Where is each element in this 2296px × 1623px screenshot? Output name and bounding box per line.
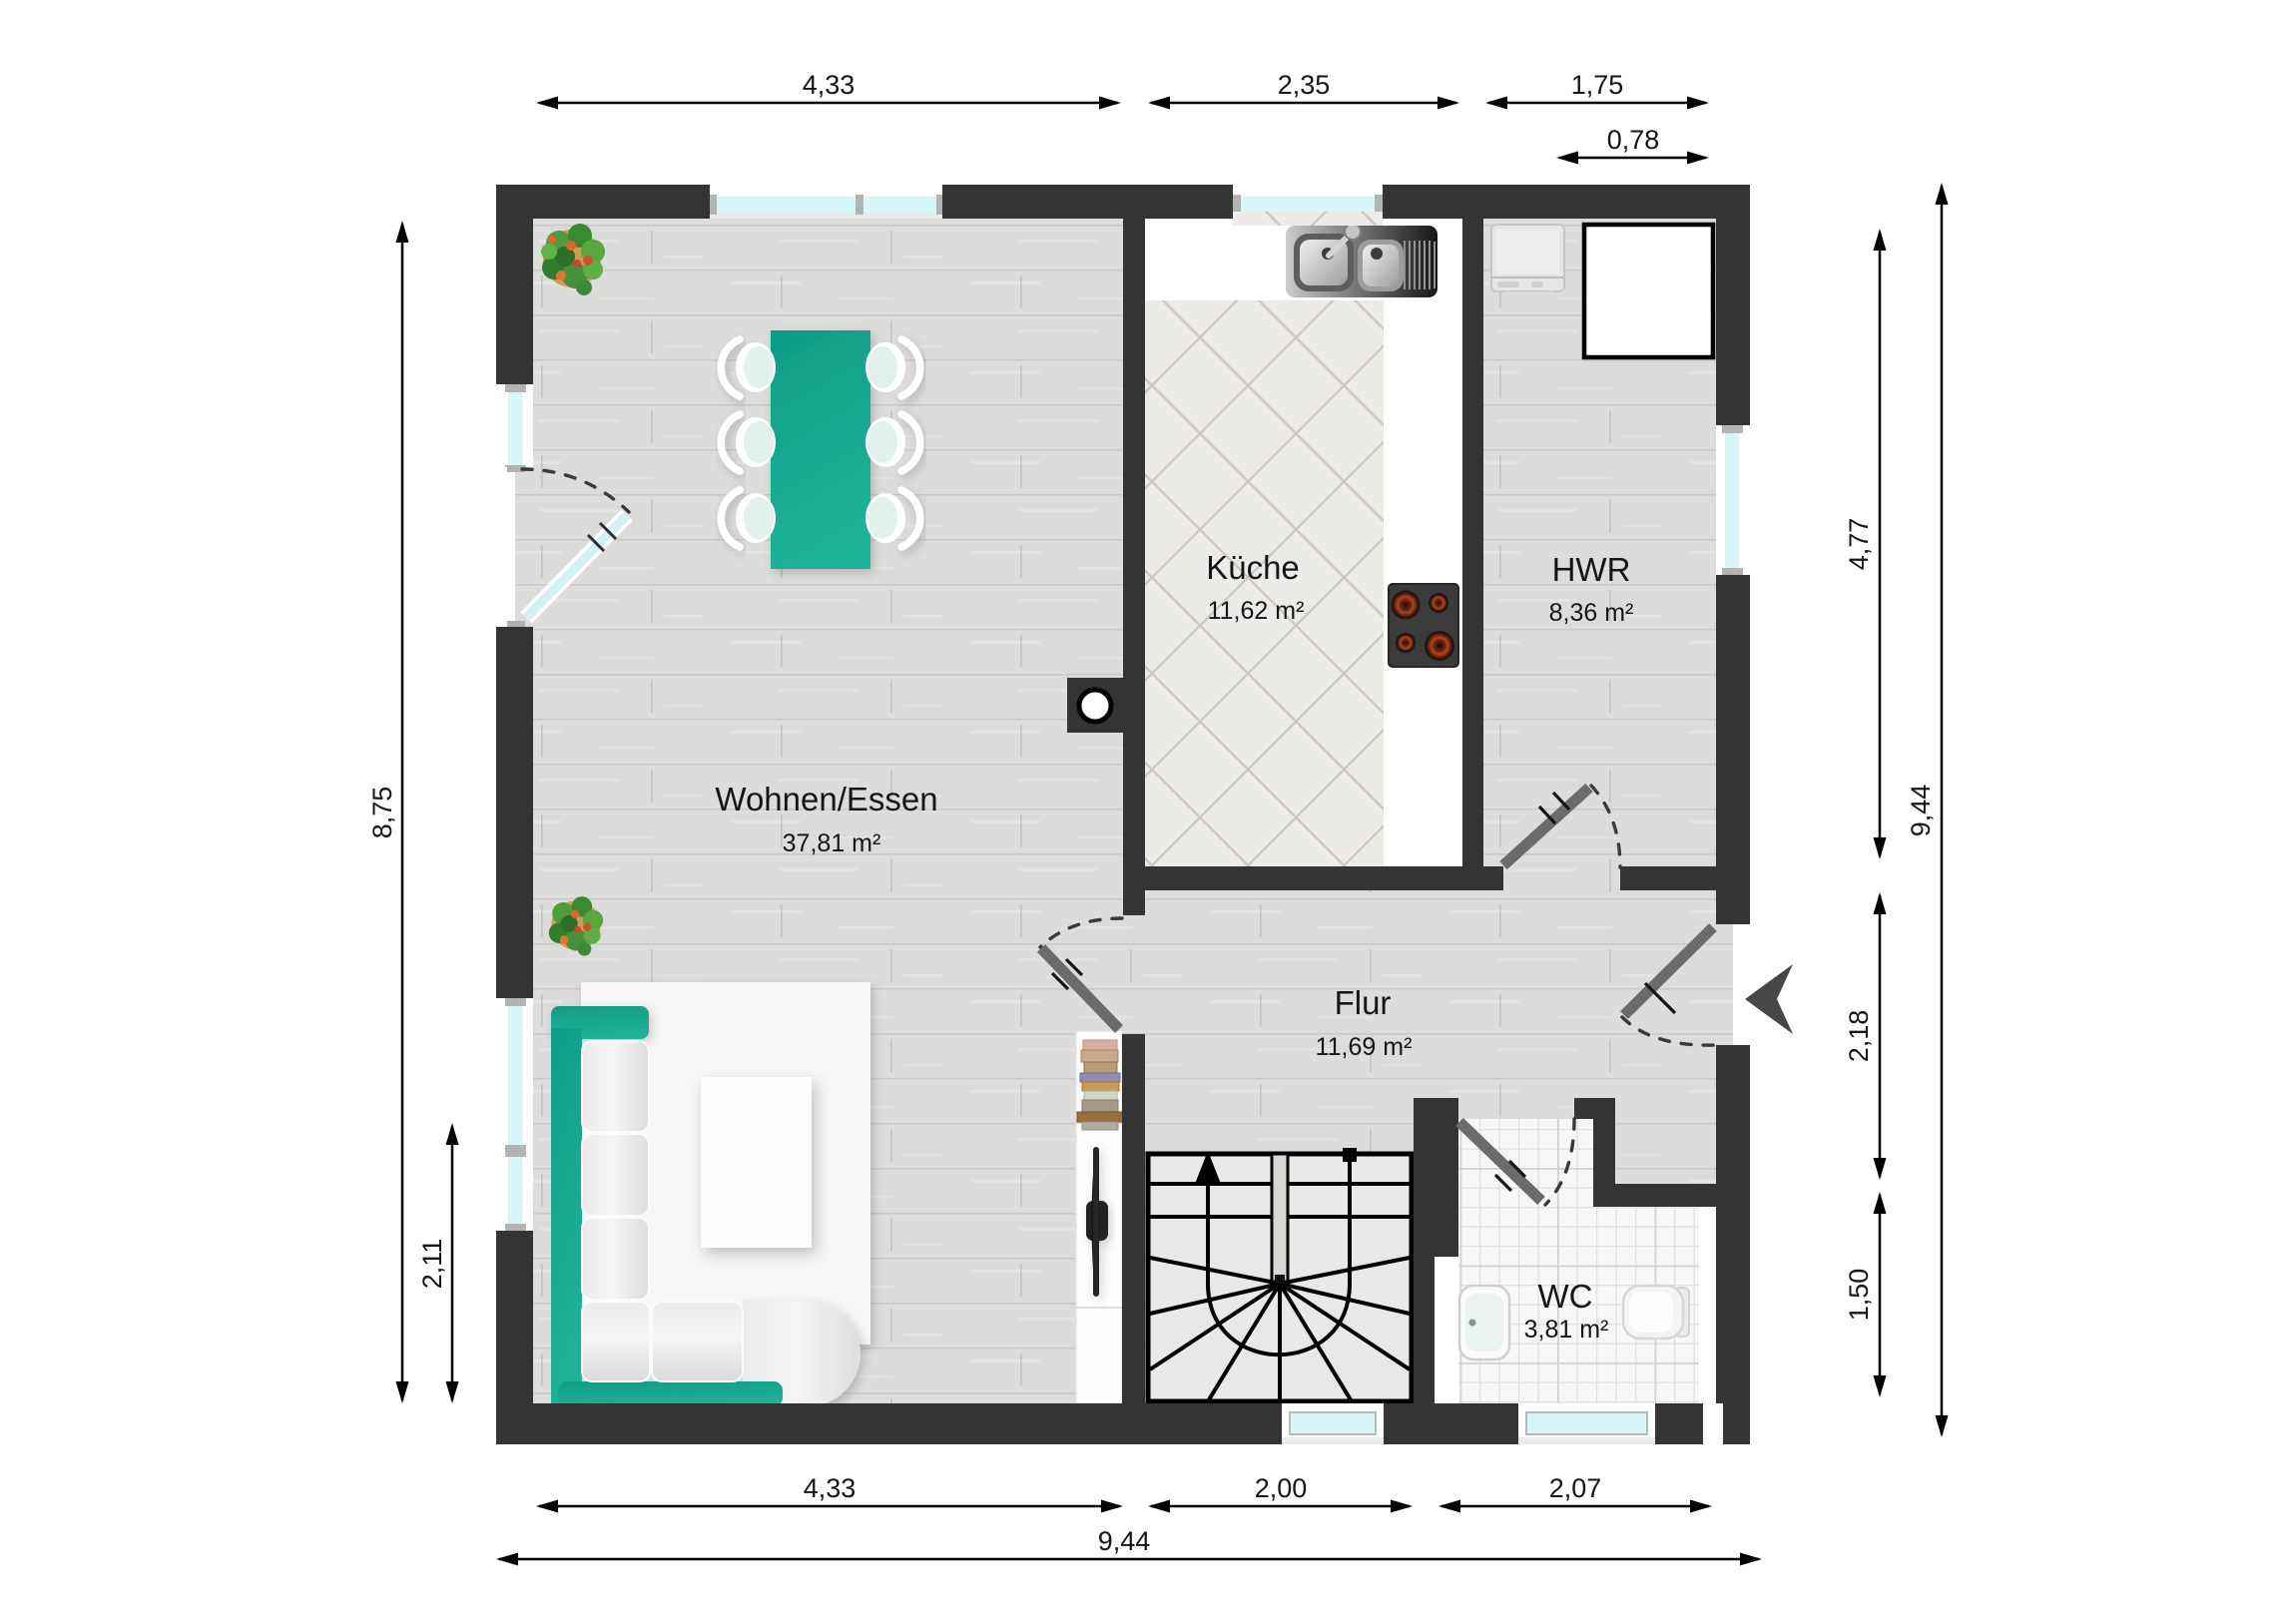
svg-text:8,75: 8,75: [367, 787, 397, 839]
svg-text:2,18: 2,18: [1844, 1010, 1874, 1063]
svg-text:9,44: 9,44: [1906, 785, 1936, 837]
svg-text:WC: WC: [1538, 1278, 1593, 1315]
svg-text:8,36 m²: 8,36 m²: [1549, 599, 1634, 627]
svg-text:3,81 m²: 3,81 m²: [1524, 1316, 1609, 1344]
svg-text:4,33: 4,33: [804, 1473, 857, 1503]
svg-text:11,69 m²: 11,69 m²: [1316, 1033, 1413, 1061]
svg-text:11,62 m²: 11,62 m²: [1208, 597, 1305, 625]
svg-text:Wohnen/Essen: Wohnen/Essen: [715, 781, 937, 817]
svg-text:2,07: 2,07: [1549, 1473, 1602, 1503]
svg-text:9,44: 9,44: [1098, 1526, 1151, 1556]
svg-text:1,50: 1,50: [1844, 1269, 1874, 1322]
svg-text:2,00: 2,00: [1255, 1473, 1308, 1503]
svg-text:Küche: Küche: [1206, 549, 1300, 586]
svg-text:4,77: 4,77: [1844, 518, 1874, 571]
svg-text:Flur: Flur: [1335, 984, 1392, 1021]
svg-text:HWR: HWR: [1552, 551, 1631, 588]
svg-text:0,78: 0,78: [1607, 125, 1660, 155]
svg-text:37,81 m²: 37,81 m²: [783, 829, 881, 857]
svg-text:2,11: 2,11: [417, 1239, 447, 1290]
svg-text:1,75: 1,75: [1571, 70, 1624, 100]
svg-text:2,35: 2,35: [1278, 70, 1331, 100]
svg-text:4,33: 4,33: [803, 70, 856, 100]
